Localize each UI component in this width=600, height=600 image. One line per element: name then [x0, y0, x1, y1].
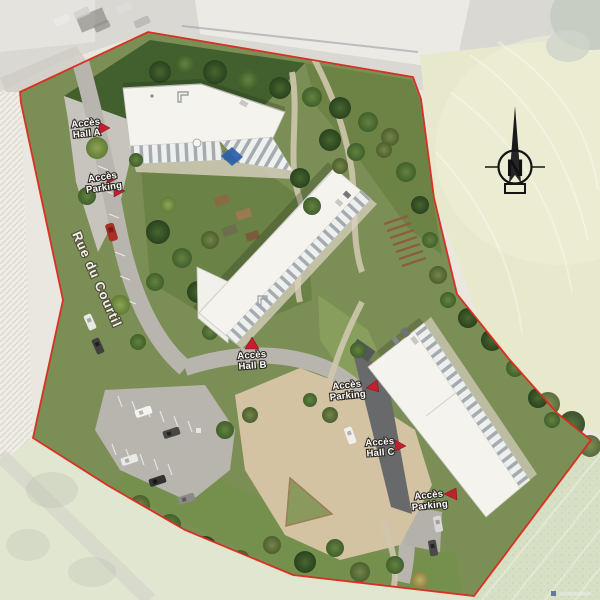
label-acces-hall-a: Accès Hall A	[71, 117, 102, 141]
label-acces-hall-c: Accès Hall C	[365, 436, 395, 459]
handicap-stall-mark	[196, 428, 201, 433]
aerial-render: Accès Hall A Accès Parking Accès Hall B …	[0, 0, 600, 600]
compass-n-label: N	[506, 155, 523, 182]
site-plan-canvas: Accès Hall A Accès Parking Accès Hall B …	[0, 0, 600, 600]
label-acces-parking-c-lower: Accès Parking	[410, 488, 448, 513]
hall-c-line2: Hall C	[366, 447, 395, 460]
label-acces-hall-b: Accès Hall B	[237, 349, 267, 372]
patio-umbrella	[193, 139, 201, 147]
hall-b-line2: Hall B	[238, 360, 267, 373]
label-acces-parking-c-upper: Accès Parking	[328, 378, 366, 403]
